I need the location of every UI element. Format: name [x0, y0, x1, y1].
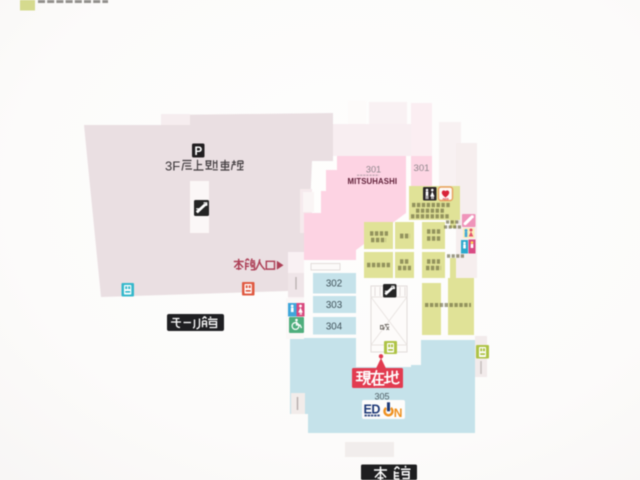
- svg-text:AED: AED: [442, 197, 449, 201]
- svg-text:302: 302: [326, 278, 342, 289]
- svg-text:301: 301: [413, 163, 429, 174]
- svg-text:3F: 3F: [165, 158, 180, 173]
- svg-text:303: 303: [326, 300, 343, 311]
- svg-text:301: 301: [366, 164, 381, 174]
- svg-text:ED: ED: [364, 403, 381, 417]
- svg-text:N: N: [394, 406, 403, 420]
- svg-text:MITSUHASHI: MITSUHASHI: [348, 177, 398, 186]
- svg-text:P: P: [194, 146, 202, 158]
- svg-text:304: 304: [326, 321, 343, 332]
